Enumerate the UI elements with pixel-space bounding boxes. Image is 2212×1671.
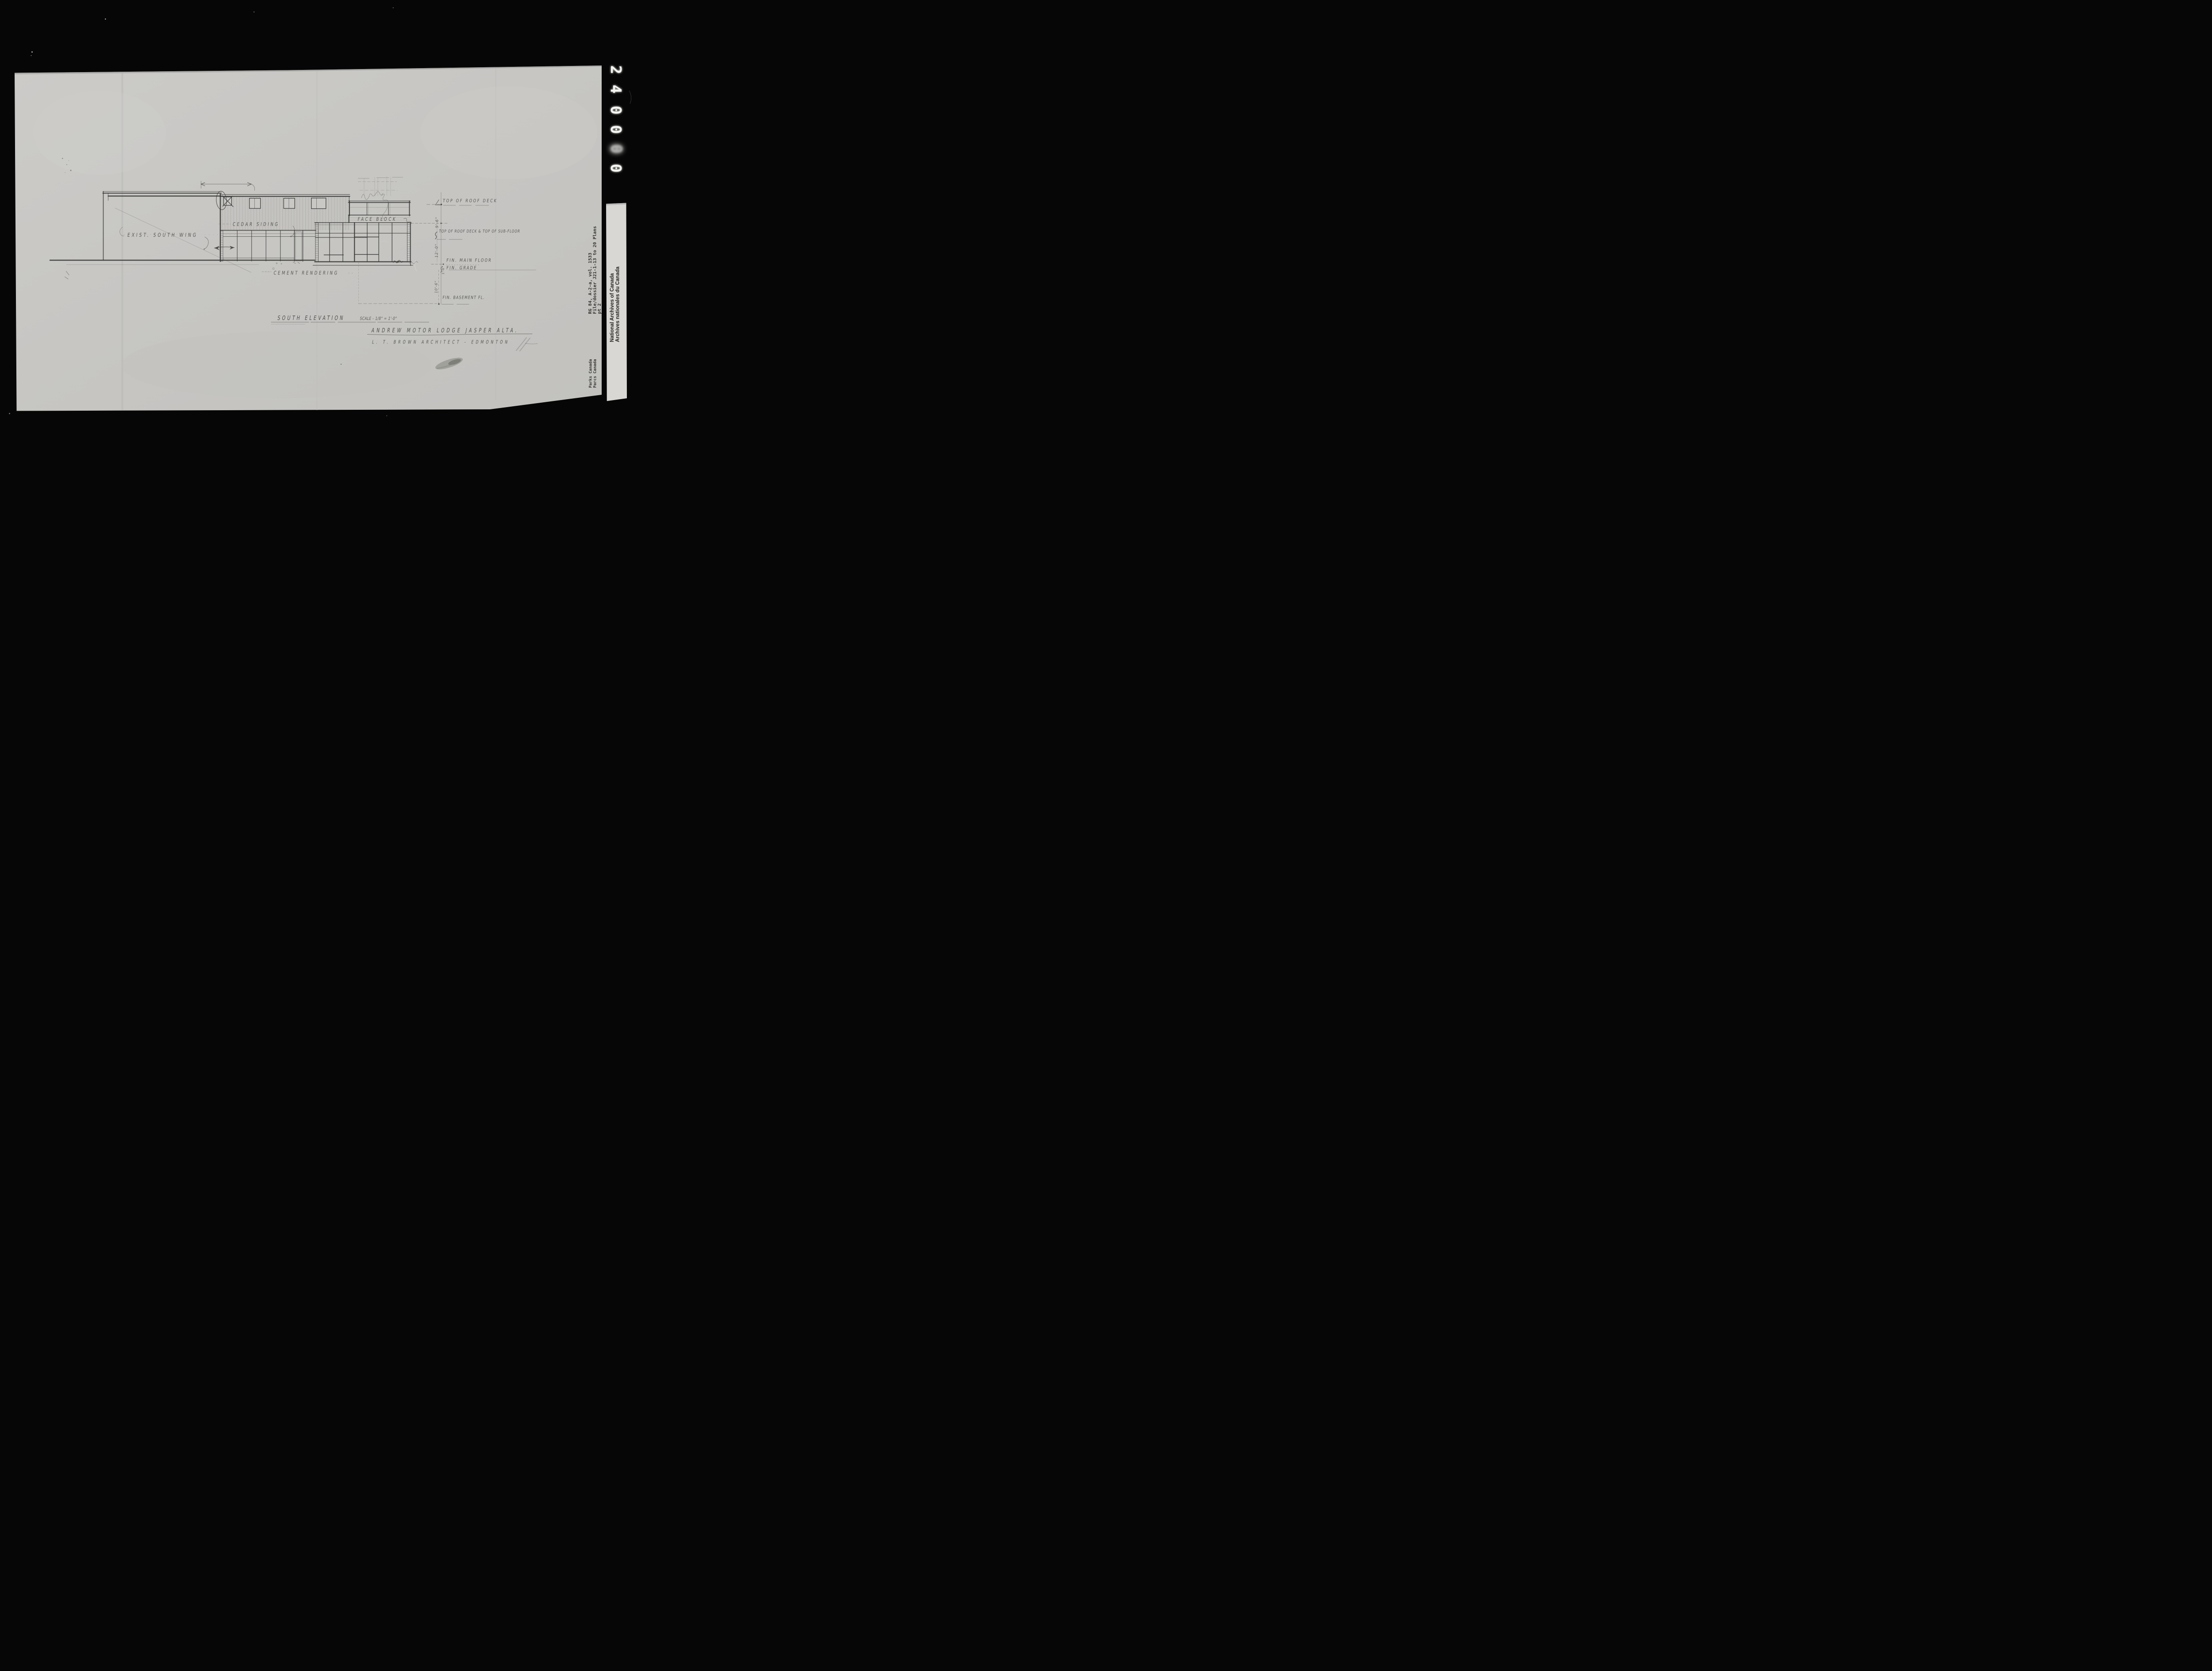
project-title: ANDREW MOTOR LODGE JASPER ALTA. (371, 327, 519, 334)
agency-stamp: Parks Canada Parcs Canada (589, 359, 598, 388)
counter-digit: 4 4 (607, 85, 625, 93)
view-scale: SCALE - 1/8" = 1'-0" (359, 316, 397, 321)
reference-line-2: File/dossier J21-1-13 to 20 Plans (592, 226, 598, 314)
counter-digit: 0 0 (607, 106, 625, 115)
counter-digit: 2 2 (607, 65, 625, 74)
label-cement-rendering: CEMENT RENDERING (273, 271, 339, 276)
reference-line-3: pt 2 (597, 303, 602, 314)
level-basement: FIN. BASEMENT FL. (442, 296, 485, 300)
agency-french: Parcs Canada (593, 359, 598, 388)
dim-basement-depth: 10'-6" (434, 281, 438, 293)
counter-digit: 0 0 (607, 164, 625, 173)
corner-post (407, 223, 411, 262)
reference-line-1: RG 84, A-2-a, vol. 1533 (588, 253, 593, 314)
dim-floor-to-grade: 1'-6" (441, 266, 445, 275)
architect-line: L. T. BROWN ARCHITECT - EDMONTON (372, 339, 510, 345)
level-main-floor: FIN. MAIN FLOOR (446, 258, 492, 263)
label-face-block: FACE BLOCK (357, 217, 397, 222)
svg-text:2: 2 (607, 65, 625, 74)
microfilm-scan: EXIST. SOUTH WING CEDAR SIDING FACE BLOC… (0, 0, 679, 418)
institution-french: Archives nationales du Canada (615, 266, 621, 342)
svg-text:0: 0 (607, 164, 625, 173)
dim-storey: 12'-0" (435, 243, 439, 258)
counter-digit: 0 0 (607, 125, 625, 134)
level-roof-deck: TOP OF ROOF DECK (442, 198, 498, 204)
svg-text:0: 0 (607, 125, 625, 134)
dim-upper: 9'-6" (435, 217, 440, 228)
counter-digit-blurred: 0 0 (607, 144, 626, 154)
label-cedar-siding: CEDAR SIDING (232, 222, 280, 227)
svg-text:0: 0 (607, 144, 625, 154)
corner-post (315, 223, 319, 262)
agency-english: Parks Canada (589, 359, 593, 388)
view-title: SOUTH ELEVATION (277, 314, 346, 321)
level-sub-floor: TOP OF ROOF DECK & TOP OF SUB-FLOOR (438, 229, 521, 234)
institution-english: National Archives of Canada (610, 273, 615, 342)
level-grade: FIN. GRADE (446, 266, 477, 271)
svg-text:0: 0 (607, 106, 625, 115)
svg-text:4: 4 (607, 85, 625, 93)
label-existing-wing: EXIST. SOUTH WING (127, 232, 198, 239)
archives-card: National Archives of Canada Archives nat… (606, 203, 627, 401)
drawing-sheet (15, 65, 602, 411)
microfilm-frame: EXIST. SOUTH WING CEDAR SIDING FACE BLOC… (0, 0, 679, 418)
